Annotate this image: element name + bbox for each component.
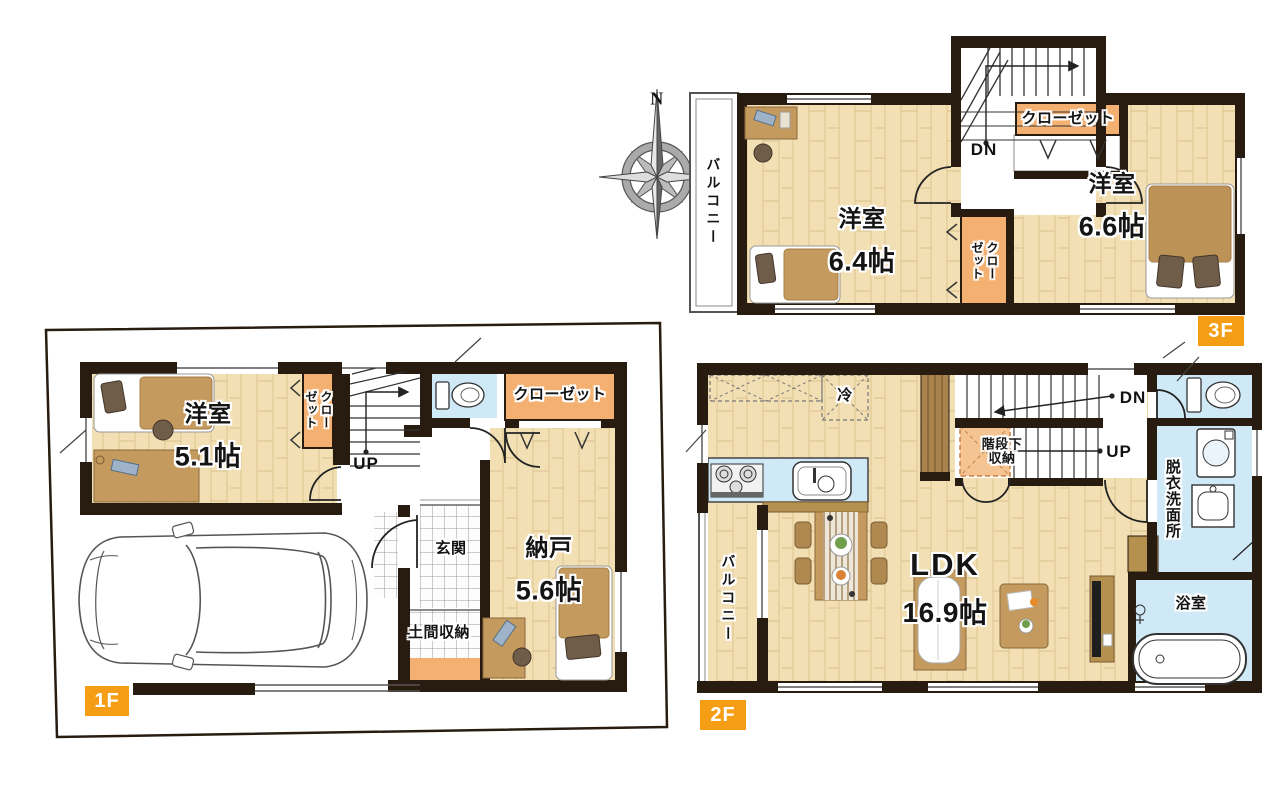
bath-label-2f: 浴室 [1175,596,1206,612]
floor2-vanity-icon [1192,485,1234,527]
stair-up-label-1f: UP [353,455,379,473]
balcony-label-2f: バルコニー [721,554,736,644]
floor-badge-2f: 2F [700,700,746,730]
doma-storage-label-1f: 土間収納 [408,625,470,641]
floor3-plan [690,36,1245,358]
fridge-label-2f: 冷 [837,388,853,404]
floor1-doma-orange [398,658,480,682]
room-label-3f-bedroom-right: 洋室 6.6帖 [1079,155,1146,258]
understair-storage-label-2f: 階段下 収納 [982,437,1023,464]
washroom-label-2f: 脱衣洗面所 [1164,459,1180,539]
entrance-label-1f: 玄関 [435,541,466,557]
floor-badge-3f: 3F [1198,316,1244,346]
vertical-closet-label-1f: クロー ゼット [303,391,333,430]
balcony-label-3f: バルコニー [706,157,721,247]
room-label-2f-ldk: LDK 16.9帖 [903,532,988,644]
room-label-3f-bedroom-left: 洋室 6.4帖 [829,190,896,293]
stair-up-label-2f: UP [1106,443,1132,461]
floor-plan-page: N 洋室 6.4帖 洋室 6.6帖 クローゼット クロー ゼット DN バルコニ… [0,0,1280,792]
vertical-closet-label-3f: クロー ゼット [969,242,999,281]
floor2-tv [1090,576,1114,662]
floor1-toilet-icon [436,382,484,409]
floor2-washer-icon [1197,429,1235,477]
floor3-tick-mark [1163,342,1185,358]
floor-badge-1f: 1F [85,686,129,716]
floor1-porch-tiles [374,512,398,598]
compass-north-label: N [650,90,664,109]
car-icon [79,522,367,671]
floor2-coffee-table [1000,584,1048,648]
room-label-1f-storage: 納戸 5.6帖 [516,519,583,622]
stair-down-label-3f: DN [971,141,998,159]
closet-label-1f: クローゼット [513,387,606,403]
room-label-1f-bedroom: 洋室 5.1帖 [175,385,242,488]
stair-down-label-2f: DN [1120,389,1147,407]
closet-label-3f: クローゼット [1021,111,1114,127]
